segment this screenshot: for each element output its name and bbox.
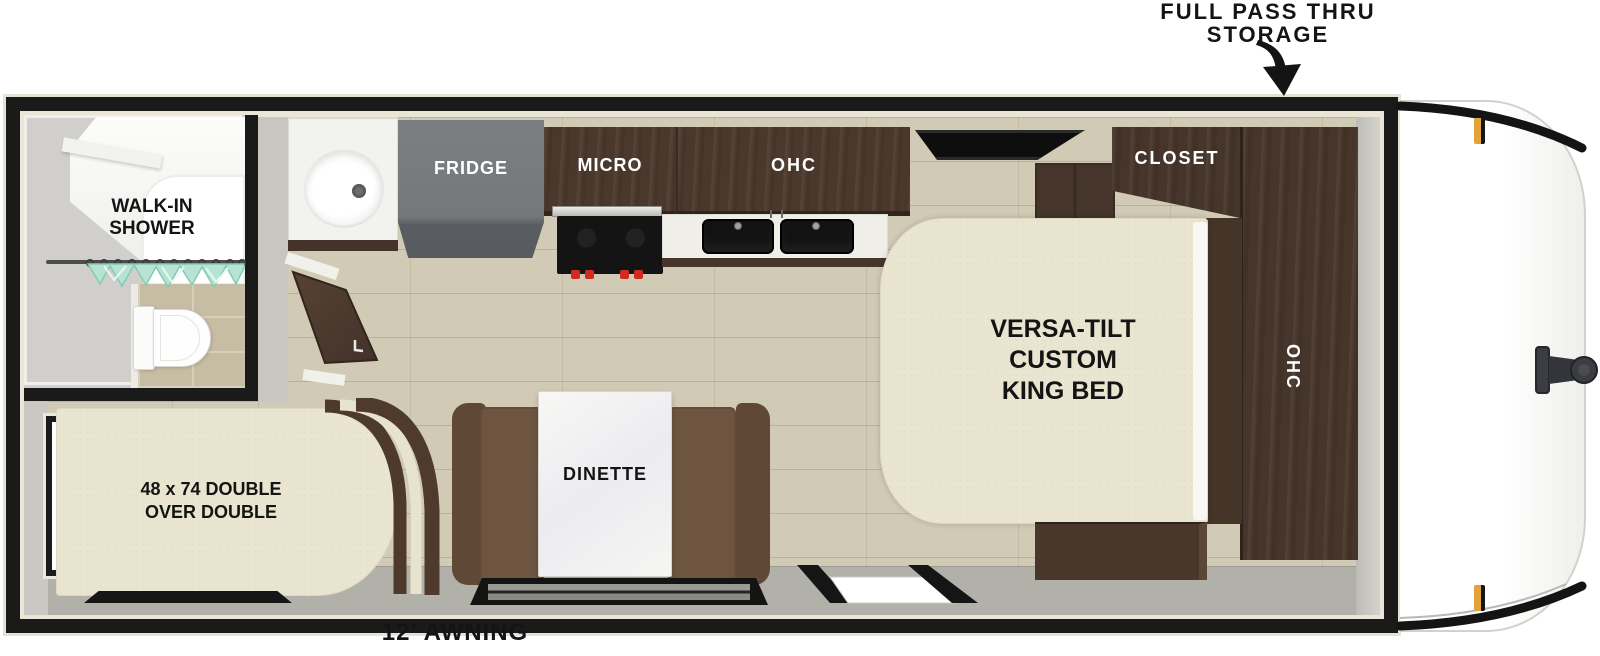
awning-label: 12’ AWNING [310, 619, 600, 647]
hitch-coupler [1528, 342, 1600, 398]
storage-arrow-icon [1250, 40, 1320, 100]
pass-thru-storage-line1: FULL PASS THRU [1118, 0, 1418, 23]
trailer-body-wall [6, 97, 1398, 633]
marker-light-bottom [1474, 585, 1485, 611]
marker-light-top [1474, 118, 1485, 144]
floorplan-canvas: WALK-IN SHOWER 48 x 74 DOUBLE OVER DOUBL… [0, 0, 1600, 656]
